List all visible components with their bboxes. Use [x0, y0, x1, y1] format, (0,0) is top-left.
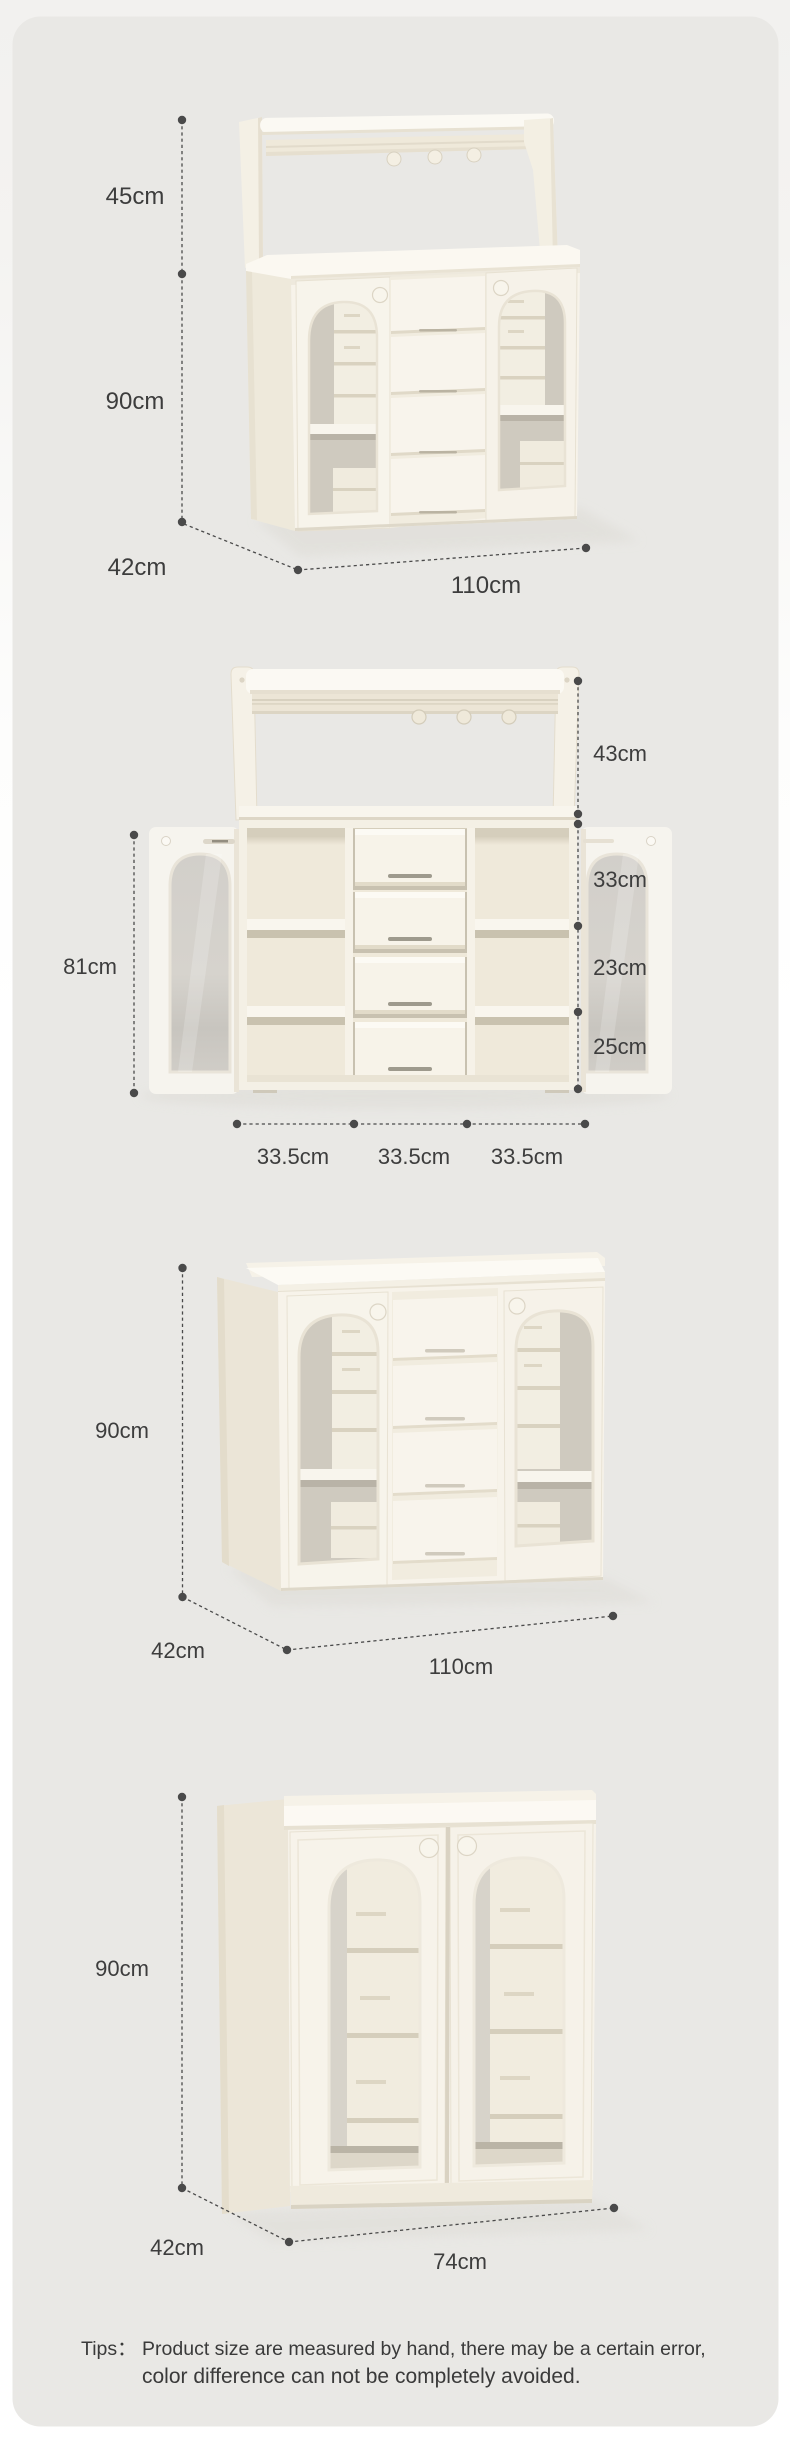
svg-text:33.5cm: 33.5cm: [257, 1144, 329, 1169]
svg-text:33.5cm: 33.5cm: [378, 1144, 450, 1169]
svg-text:90cm: 90cm: [106, 388, 165, 415]
svg-text:90cm: 90cm: [95, 1418, 149, 1443]
svg-text:color difference can not be co: color difference can not be completely a…: [142, 2365, 581, 2388]
svg-text:81cm: 81cm: [63, 954, 117, 979]
svg-text:Tips： Product size are measur: Tips： Product size are measured by hand,…: [81, 2338, 706, 2360]
svg-text:33.5cm: 33.5cm: [491, 1144, 563, 1169]
svg-text:23cm: 23cm: [593, 955, 647, 980]
svg-text:90cm: 90cm: [95, 1956, 149, 1981]
svg-text:33cm: 33cm: [593, 867, 647, 892]
svg-text:43cm: 43cm: [593, 741, 647, 766]
svg-text:110cm: 110cm: [429, 1654, 493, 1679]
svg-text:42cm: 42cm: [151, 1638, 205, 1663]
svg-text:74cm: 74cm: [433, 2249, 487, 2274]
svg-text:42cm: 42cm: [108, 554, 167, 581]
svg-text:110cm: 110cm: [451, 572, 521, 599]
svg-text:42cm: 42cm: [150, 2235, 204, 2260]
svg-text:25cm: 25cm: [593, 1034, 647, 1059]
svg-text:45cm: 45cm: [106, 183, 165, 210]
